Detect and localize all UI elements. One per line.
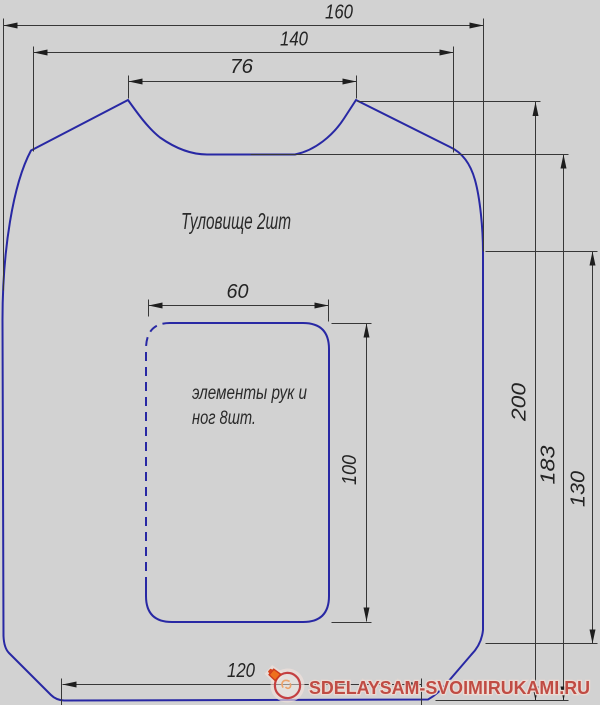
svg-text:200: 200 <box>509 383 531 422</box>
svg-text:SDELAYSAM-SVOIMIRUKAMI.RU: SDELAYSAM-SVOIMIRUKAMI.RU <box>309 677 590 698</box>
svg-text:130: 130 <box>568 471 590 507</box>
svg-text:183: 183 <box>538 446 560 485</box>
svg-text:76: 76 <box>230 56 254 78</box>
svg-text:100: 100 <box>339 455 361 485</box>
svg-text:Туловище 2шт: Туловище 2шт <box>181 208 291 234</box>
svg-text:160: 160 <box>325 2 353 24</box>
svg-text:элементы рук и: элементы рук и <box>192 383 307 404</box>
svg-text:60: 60 <box>227 281 249 303</box>
svg-text:120: 120 <box>227 660 255 682</box>
svg-text:140: 140 <box>280 29 308 51</box>
svg-text:ног 8шт.: ног 8шт. <box>192 408 256 429</box>
